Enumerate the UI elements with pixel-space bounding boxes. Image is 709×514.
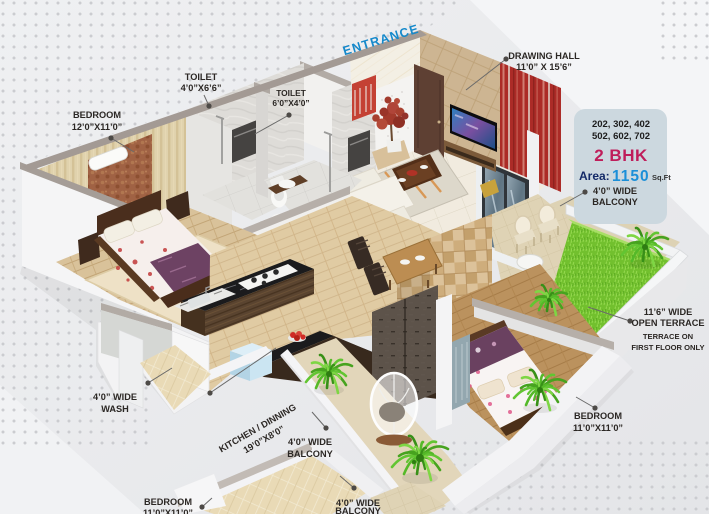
svg-text:202, 302, 402: 202, 302, 402 (592, 119, 650, 130)
svg-text:WASH: WASH (101, 404, 129, 414)
svg-text:4’0” WIDE: 4’0” WIDE (93, 392, 137, 402)
svg-text:BALCONY: BALCONY (335, 506, 380, 514)
svg-text:DRAWING HALL: DRAWING HALL (508, 51, 580, 61)
svg-text:4’0”X6’6”: 4’0”X6’6” (181, 83, 222, 93)
svg-text:6’0”X4’0”: 6’0”X4’0” (272, 98, 309, 108)
svg-text:4’0” WIDE: 4’0” WIDE (288, 437, 332, 447)
svg-text:BALCONY: BALCONY (592, 197, 637, 207)
svg-text:TERRACE ON: TERRACE ON (643, 332, 693, 341)
svg-text:BALCONY: BALCONY (287, 449, 332, 459)
svg-text:FIRST FLOOR ONLY: FIRST FLOOR ONLY (631, 343, 704, 352)
svg-text:OPEN TERRACE: OPEN TERRACE (632, 318, 705, 328)
svg-text:11’0”X11’0”: 11’0”X11’0” (573, 423, 623, 433)
svg-text:11’0”X11’0”: 11’0”X11’0” (143, 508, 193, 514)
svg-text:1150: 1150 (612, 168, 650, 185)
svg-text:11’6” WIDE: 11’6” WIDE (644, 307, 693, 317)
svg-text:TOILET: TOILET (276, 88, 307, 98)
svg-text:BEDROOM: BEDROOM (73, 110, 121, 120)
svg-text:BEDROOM: BEDROOM (574, 411, 622, 421)
svg-text:TOILET: TOILET (185, 72, 218, 82)
svg-text:12’0”X11’0”: 12’0”X11’0” (72, 122, 123, 132)
svg-text:11’0” X 15’6”: 11’0” X 15’6” (516, 62, 572, 72)
svg-text:2 BHK: 2 BHK (594, 146, 648, 165)
svg-text:BEDROOM: BEDROOM (144, 497, 192, 507)
svg-text:502, 602, 702: 502, 602, 702 (592, 131, 650, 142)
svg-text:4’0” WIDE: 4’0” WIDE (593, 186, 637, 196)
svg-text:Area:: Area: (579, 169, 610, 183)
svg-text:Sq.Ft: Sq.Ft (652, 173, 671, 182)
